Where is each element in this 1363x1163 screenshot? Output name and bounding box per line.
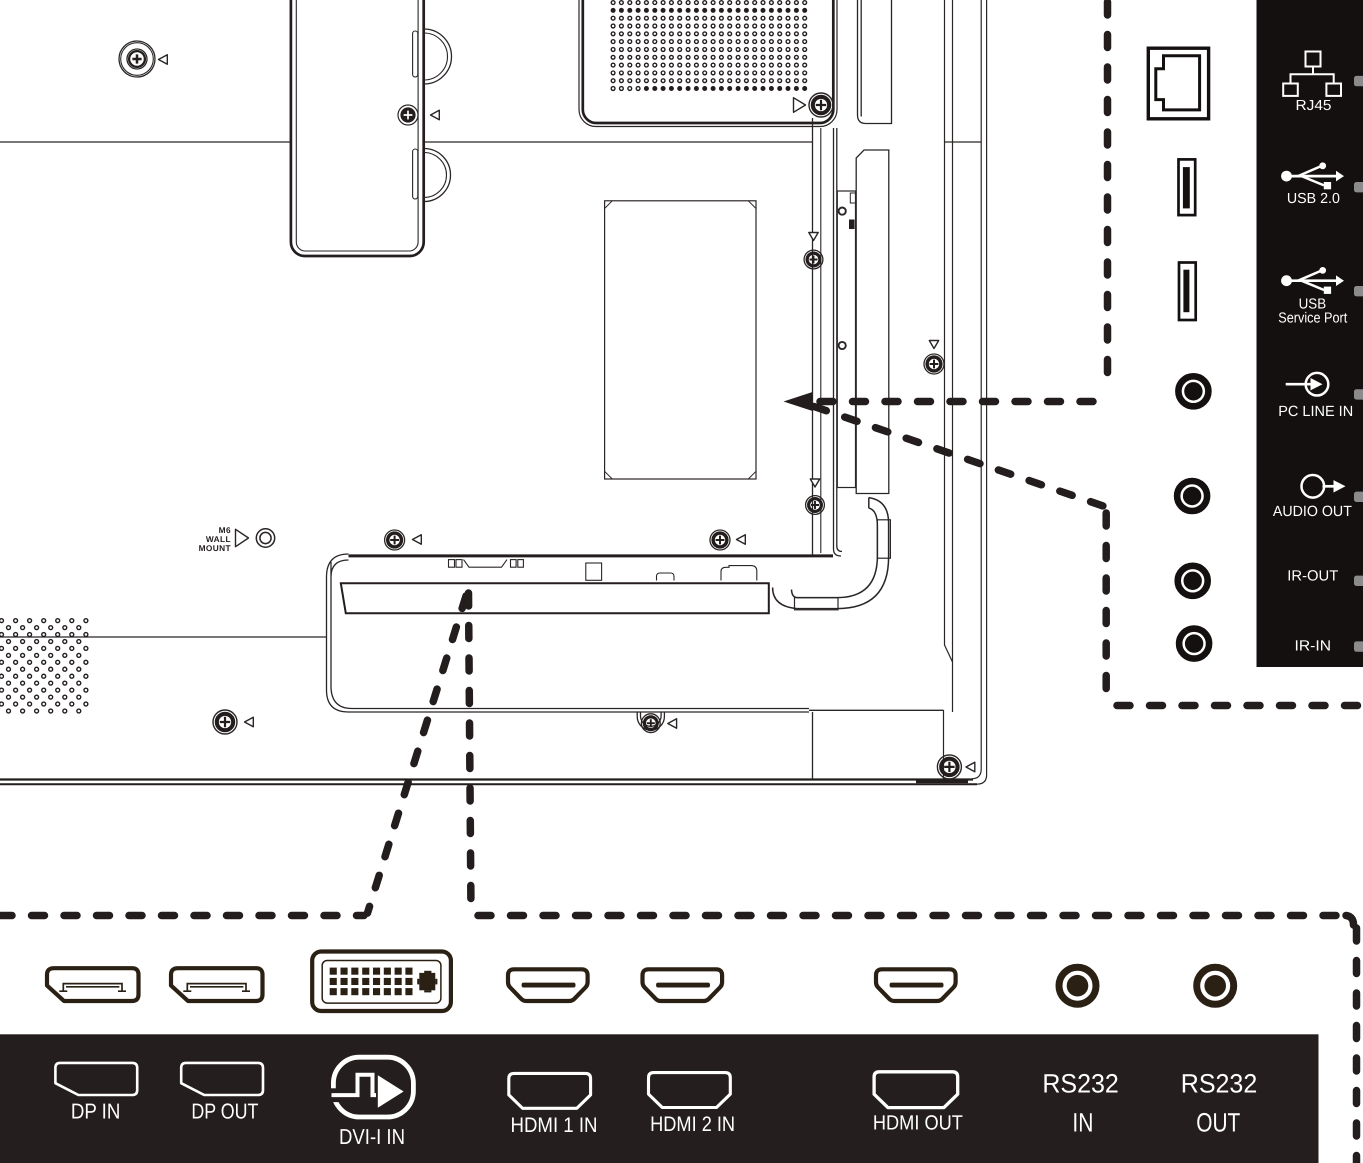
svg-text:AUDIO OUT: AUDIO OUT — [1273, 504, 1352, 520]
svg-text:IR-IN: IR-IN — [1295, 639, 1332, 655]
svg-text:IR-OUT: IR-OUT — [1287, 569, 1338, 585]
svg-text:DP OUT: DP OUT — [191, 1099, 258, 1124]
svg-text:OUT: OUT — [1196, 1108, 1240, 1138]
svg-text:MOUNT: MOUNT — [199, 543, 231, 553]
svg-text:RJ45: RJ45 — [1296, 98, 1332, 114]
svg-text:RS232: RS232 — [1042, 1069, 1119, 1099]
svg-text:PC LINE IN: PC LINE IN — [1278, 404, 1353, 420]
svg-text:HDMI 1 IN: HDMI 1 IN — [511, 1114, 598, 1137]
svg-text:IN: IN — [1072, 1108, 1093, 1138]
svg-text:DP IN: DP IN — [71, 1099, 121, 1124]
svg-text:HDMI OUT: HDMI OUT — [873, 1111, 963, 1134]
svg-text:USB 2.0: USB 2.0 — [1287, 191, 1340, 207]
svg-text:Service Port: Service Port — [1278, 311, 1347, 327]
svg-text:DVI-I IN: DVI-I IN — [339, 1124, 405, 1149]
svg-text:RS232: RS232 — [1181, 1069, 1258, 1099]
svg-text:HDMI 2 IN: HDMI 2 IN — [650, 1113, 735, 1136]
